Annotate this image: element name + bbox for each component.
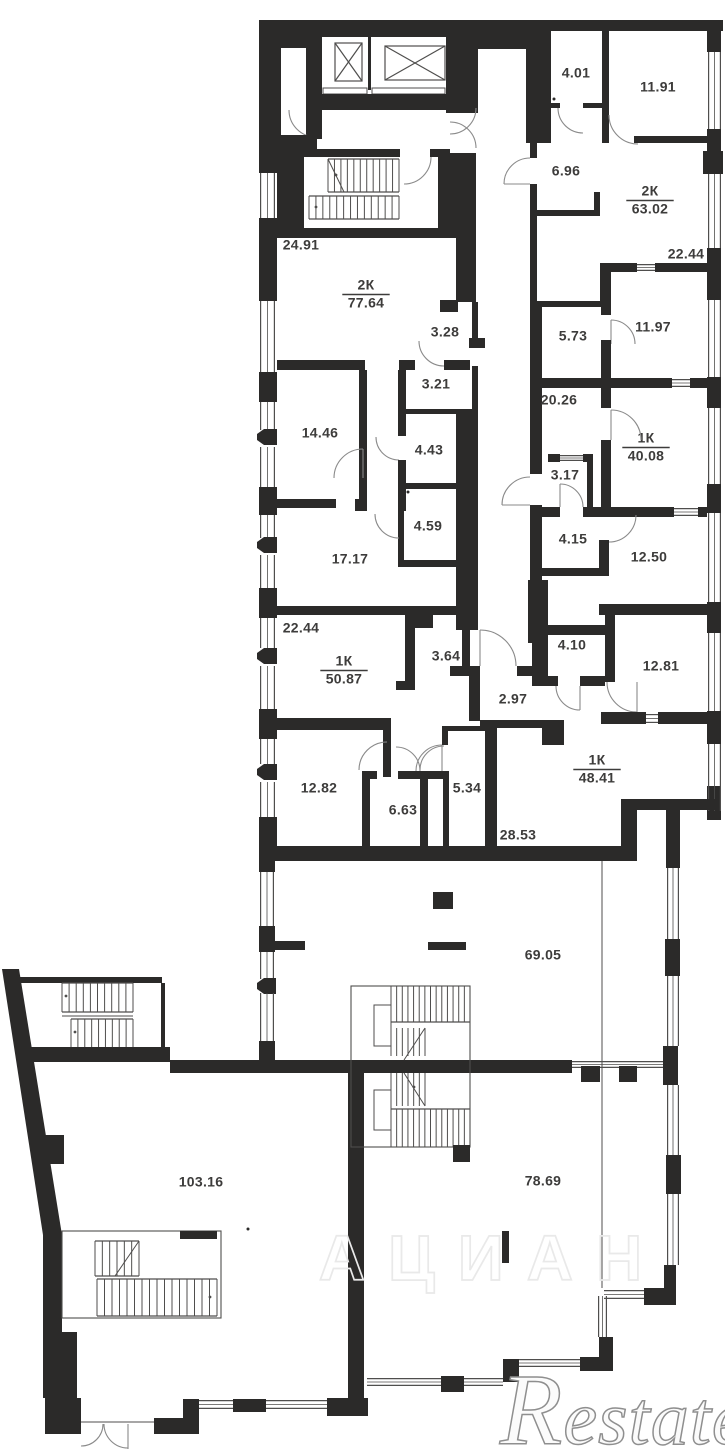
svg-text:3.28: 3.28	[431, 324, 459, 340]
svg-text:2К: 2К	[642, 183, 659, 199]
svg-text:14.46: 14.46	[302, 425, 339, 441]
svg-text:48.41: 48.41	[579, 770, 616, 786]
svg-text:78.69: 78.69	[525, 1173, 562, 1189]
svg-text:11.91: 11.91	[640, 79, 676, 95]
svg-text:5.73: 5.73	[559, 328, 587, 344]
svg-text:1К: 1К	[589, 752, 606, 768]
svg-text:2К: 2К	[358, 277, 375, 293]
svg-text:4.43: 4.43	[415, 442, 443, 458]
svg-text:1К: 1К	[336, 653, 353, 669]
svg-text:3.17: 3.17	[551, 467, 579, 483]
svg-text:6.63: 6.63	[389, 802, 417, 818]
svg-text:20.26: 20.26	[541, 392, 578, 408]
svg-text:4.10: 4.10	[558, 637, 586, 653]
svg-text:12.81: 12.81	[643, 658, 680, 674]
svg-text:77.64: 77.64	[348, 295, 385, 311]
svg-text:6.96: 6.96	[552, 163, 580, 179]
svg-text:3.64: 3.64	[432, 648, 460, 664]
svg-text:103.16: 103.16	[179, 1174, 224, 1190]
svg-text:63.02: 63.02	[632, 201, 669, 217]
svg-text:3.21: 3.21	[422, 376, 450, 392]
svg-text:4.59: 4.59	[414, 518, 442, 534]
svg-text:22.44: 22.44	[668, 246, 705, 262]
svg-text:40.08: 40.08	[628, 448, 665, 464]
svg-text:11.97: 11.97	[635, 319, 671, 335]
svg-text:4.15: 4.15	[559, 531, 587, 547]
svg-text:4.01: 4.01	[562, 65, 590, 81]
svg-text:12.82: 12.82	[301, 780, 338, 796]
svg-text:17.17: 17.17	[332, 551, 369, 567]
svg-text:5.34: 5.34	[453, 780, 481, 796]
svg-text:50.87: 50.87	[326, 671, 363, 687]
svg-text:24.91: 24.91	[283, 237, 320, 253]
svg-text:2.97: 2.97	[499, 691, 527, 707]
svg-text:АЦИАН: АЦИАН	[319, 1222, 665, 1294]
svg-text:12.50: 12.50	[631, 549, 668, 565]
svg-text:28.53: 28.53	[500, 827, 537, 843]
svg-text:69.05: 69.05	[525, 947, 562, 963]
svg-text:22.44: 22.44	[283, 620, 320, 636]
